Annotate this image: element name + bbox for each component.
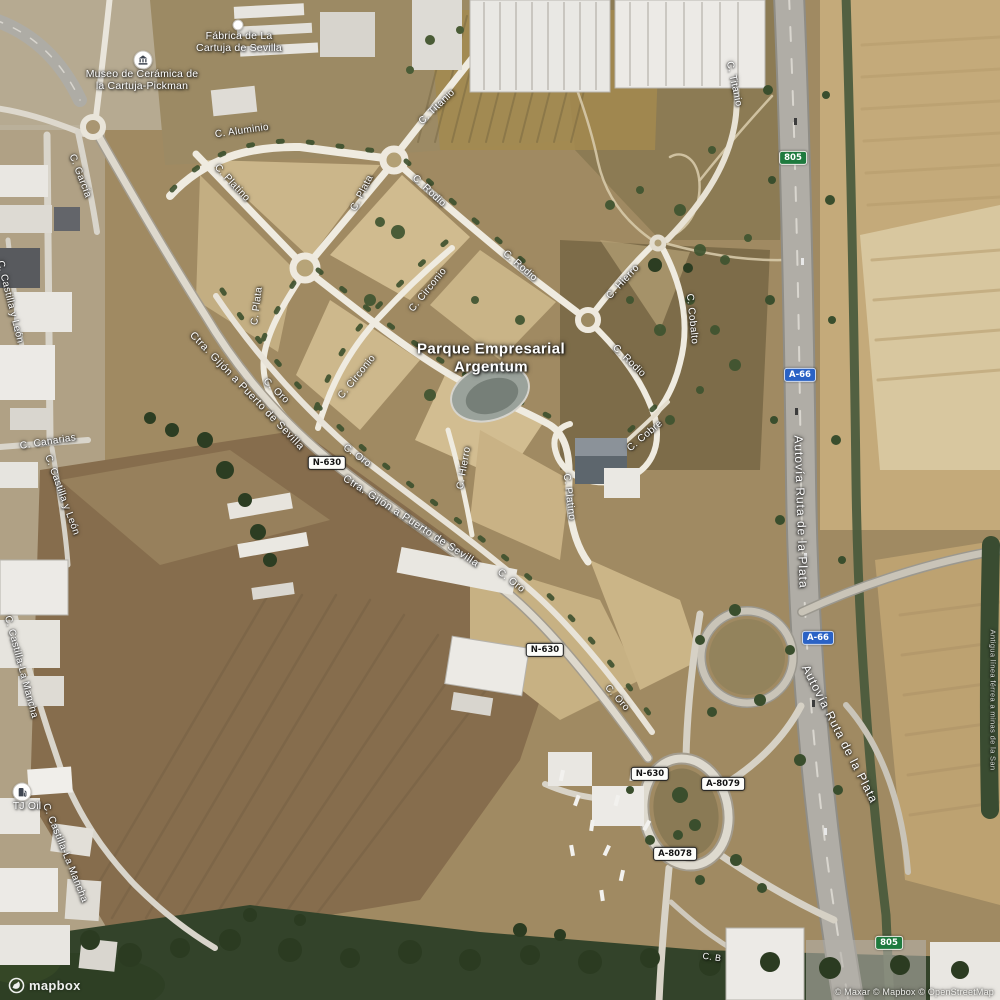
mapbox-logo[interactable]: mapbox <box>8 977 81 994</box>
street-label-c-plata: C. Plata <box>249 286 265 325</box>
road-shield-a-8079: A-8079 <box>701 777 745 791</box>
attribution-credits[interactable]: © Maxar © Mapbox © OpenStreetMap <box>835 987 994 997</box>
street-label-c-castilla-y-leo-n: C. Castilla y León <box>0 260 26 345</box>
street-label-c-rodio: C. Rodio <box>610 343 648 380</box>
poi-label-museo-de-cera-mica-de: Museo de Cerámica de la Cartuja-Pickman <box>86 68 199 93</box>
street-label-c-platino: C. Platino <box>212 162 252 204</box>
street-label-antigua-li-nea-fe-rrea-a-minas-de-la-san: Antigua línea férrea a minas de la San <box>989 630 998 771</box>
museum-icon[interactable] <box>134 51 153 70</box>
poi-label-fa-brica-de-la: Fábrica de La Cartuja de Sevilla <box>196 30 282 55</box>
street-label-c-canarias: C. Canarias <box>19 432 77 452</box>
area-label-line1: Parque Empresarial <box>417 341 565 358</box>
street-label-c-b: C. B <box>702 951 722 964</box>
street-label-c-aluminio: C. Aluminio <box>214 122 269 140</box>
street-label-c-plata: C. Plata <box>348 173 375 212</box>
street-label-autovi-a-ruta-de-la-plata: Autovía Ruta de la Plata <box>791 435 810 589</box>
fuel-icon[interactable] <box>13 783 32 802</box>
road-shield-805: 805 <box>779 151 807 165</box>
poi-label-tj-oil: TJ Oil <box>13 800 42 812</box>
road-shield-n-630: N-630 <box>631 767 669 781</box>
street-label-c-rodio: C. Rodio <box>501 248 540 284</box>
street-label-c-circonio: C. Circonio <box>407 266 449 314</box>
street-label-c-garci-a: C. García <box>67 153 94 200</box>
street-label-c-platino: C. Platino <box>561 473 578 521</box>
street-label-c-rodio: C. Rodio <box>410 173 448 209</box>
road-shield-a-66: A-66 <box>784 368 816 382</box>
road-shield-n-630: N-630 <box>526 643 564 657</box>
street-label-c-hierro: C. Hierro <box>455 446 473 490</box>
area-label-line2: Argentum <box>454 359 528 376</box>
mapbox-logo-icon <box>8 977 25 994</box>
street-label-c-cobalto: C. Cobalto <box>684 293 700 345</box>
map-canvas[interactable]: Parque Empresarial Argentum C. AluminioC… <box>0 0 1000 1000</box>
street-label-c-hierro: C. Hierro <box>604 262 641 301</box>
street-label-c-circonio: C. Circonio <box>336 353 378 401</box>
road-shield-a-8078: A-8078 <box>653 847 697 861</box>
street-label-c-castilla-y-leo-n: C. Castilla y León <box>42 453 81 536</box>
map-label-overlay: Parque Empresarial Argentum C. AluminioC… <box>0 0 1000 1000</box>
poi-dot[interactable] <box>233 20 244 31</box>
street-label-c-oro: C. Oro <box>602 683 631 714</box>
mapbox-logo-text: mapbox <box>29 978 81 993</box>
street-label-c-castilla-la-mancha: C. Castilla-La Mancha <box>40 802 90 904</box>
road-shield-805: 805 <box>875 936 903 950</box>
street-label-autovi-a-ruta-de-la-plata: Autovía Ruta de la Plata <box>799 662 881 805</box>
road-shield-n-630: N-630 <box>308 456 346 470</box>
street-label-ctra-gijo-n-a-puerto-de-sevilla: Ctra. Gijón a Puerto de Sevilla <box>187 329 307 452</box>
street-label-c-oro: C. Oro <box>495 567 527 595</box>
street-label-c-titanio: C. Titanio <box>417 87 458 127</box>
street-label-c-titanio: C. Titanio <box>724 60 744 107</box>
road-shield-a-66: A-66 <box>802 631 834 645</box>
street-label-c-castilla-la-mancha: C. Castilla-La Mancha <box>2 615 40 720</box>
street-label-c-cobre: C. Cobre <box>625 418 665 454</box>
